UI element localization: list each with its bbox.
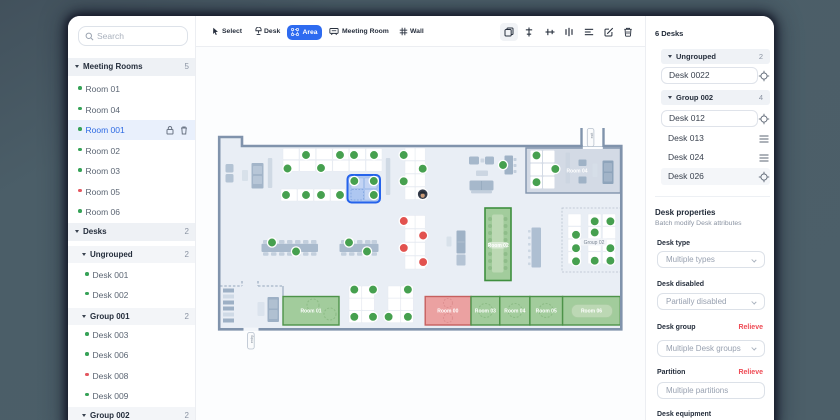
- svg-text:Room 00: Room 00: [437, 309, 458, 315]
- svg-text:Room 05: Room 05: [536, 309, 557, 315]
- svg-text:entry: entry: [250, 335, 254, 343]
- svg-text:Room 06: Room 06: [581, 309, 602, 315]
- svg-text:exit: exit: [590, 133, 594, 139]
- svg-text:Room 02: Room 02: [488, 243, 509, 249]
- svg-text:Room 03: Room 03: [475, 309, 496, 315]
- svg-text:Room 01: Room 01: [300, 309, 321, 315]
- svg-text:Room 04: Room 04: [566, 169, 587, 175]
- svg-text:Room 04: Room 04: [504, 309, 525, 315]
- svg-text:Group 02: Group 02: [584, 240, 605, 246]
